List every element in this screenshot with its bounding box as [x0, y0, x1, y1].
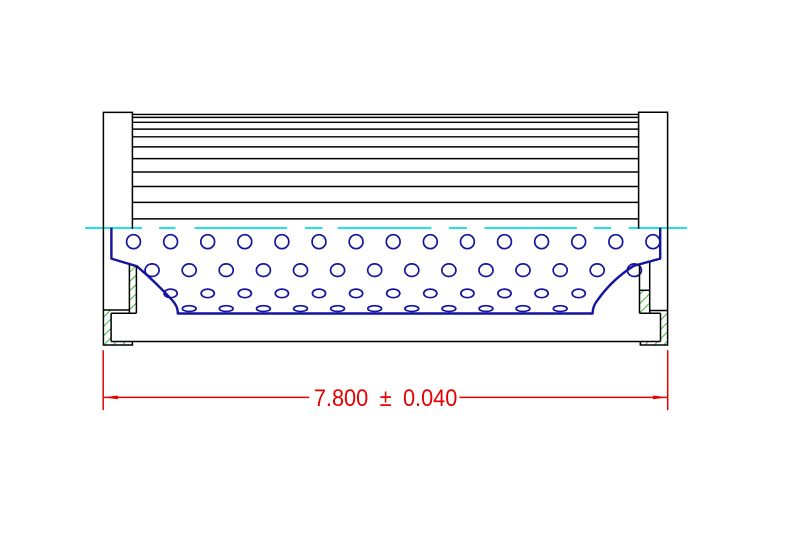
svg-text:7.800 ± 0.040: 7.800 ± 0.040 — [314, 385, 458, 412]
